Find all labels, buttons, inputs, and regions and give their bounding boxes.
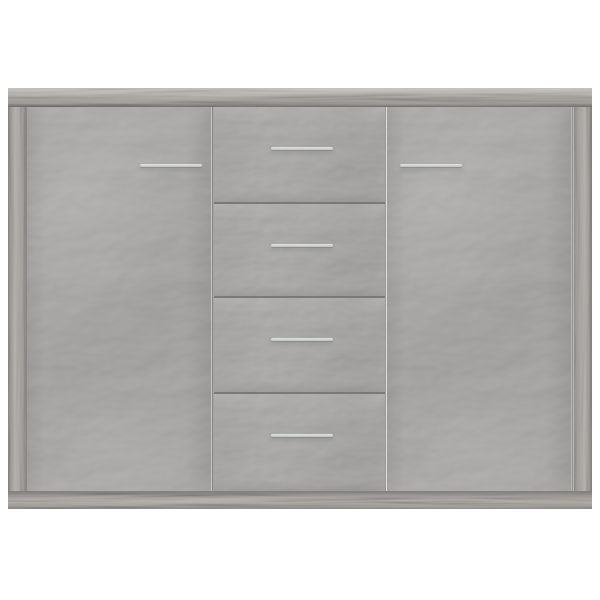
product-photo — [0, 0, 600, 600]
right-side-panel — [574, 107, 592, 491]
joint-line-drawers-door-right — [385, 107, 387, 491]
sideboard — [0, 0, 600, 600]
left-door-handle — [140, 164, 202, 167]
drawer-handle — [271, 147, 333, 150]
drawer-shading — [214, 107, 385, 202]
base-plinth — [8, 493, 592, 509]
left-side-panel — [8, 107, 26, 491]
drawer-handle — [271, 244, 333, 247]
drawer-3 — [214, 298, 385, 392]
top-board-shading — [8, 88, 592, 107]
left-door — [27, 107, 211, 491]
right-door — [387, 107, 571, 491]
right-side-panel-shading — [574, 107, 592, 491]
drawer-stack — [214, 107, 385, 491]
base-plinth-shading — [8, 493, 592, 509]
drawer-4 — [214, 394, 385, 491]
drawer-shading — [214, 204, 385, 296]
top-board — [8, 88, 592, 107]
drawer-handle — [271, 338, 333, 341]
drawer-2 — [214, 204, 385, 296]
joint-line-left — [26, 107, 27, 491]
left-side-panel-shading — [8, 107, 26, 491]
drawer-handle — [271, 434, 333, 437]
drawer-shading — [214, 298, 385, 392]
joint-line-right — [571, 107, 574, 491]
right-door-handle — [400, 164, 462, 167]
drawer-1 — [214, 107, 385, 202]
joint-line-door-drawers-left — [211, 107, 214, 491]
drawer-shading — [214, 394, 385, 491]
